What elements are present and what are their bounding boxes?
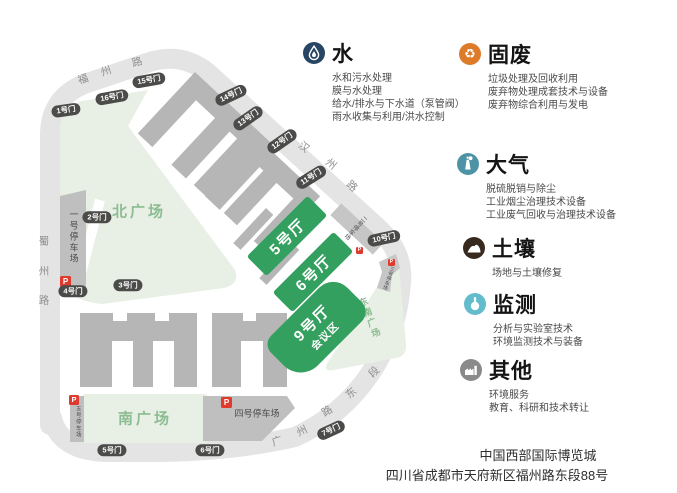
parking-1-label: 一号停车场 — [69, 210, 78, 265]
parking-3-p-icon: P — [388, 259, 395, 266]
flask-icon — [464, 293, 486, 315]
legend-item-soil: 土壤 场地与土壤修复 — [463, 233, 562, 281]
parking-4-label: 四号停车场 — [234, 407, 279, 420]
legend-title-other: 其他 — [489, 355, 533, 385]
legend-line: 工业废气回收与治理技术设备 — [486, 210, 616, 223]
legend-line: 教育、科研和技术转让 — [489, 403, 589, 416]
legend-title-solid-waste: 固废 — [488, 39, 532, 69]
parking-4-p-icon: P — [221, 397, 232, 408]
legend-item-solid-waste: ♻ 固废 垃圾处理及回收利用 废弃物处理成套技术与设备 废弃物综合利用与发电 — [459, 39, 608, 113]
legend-title-monitoring: 监测 — [493, 289, 537, 319]
legend-line: 废弃物处理成套技术与设备 — [488, 87, 608, 100]
south-plaza-label: 南广场 — [118, 408, 172, 429]
legend-line: 环境服务 — [489, 390, 589, 403]
legend-line: 水和污水处理 — [332, 73, 465, 86]
legend-line: 工业烟尘治理技术设备 — [486, 197, 616, 210]
water-drop-icon — [303, 42, 325, 64]
legend-title-water: 水 — [332, 38, 354, 68]
gate-badge-6: 6号门 — [195, 444, 224, 456]
expo-address: 四川省成都市天府新区福州路东段88号 — [386, 465, 608, 484]
gate-badge-5: 5号门 — [97, 444, 126, 456]
building-south-left — [80, 313, 197, 387]
gate-badge-2: 2号门 — [82, 211, 111, 223]
north-plaza-label: 北广场 — [112, 201, 166, 222]
legend-line: 垃圾处理及回收利用 — [488, 74, 608, 87]
legend-item-other: 其他 环境服务 教育、科研和技术转让 — [460, 355, 589, 416]
legend-line: 环境监测技术与装备 — [493, 337, 583, 350]
legend-line: 雨水收集与利用/洪水控制 — [332, 112, 465, 125]
legend-title-air: 大气 — [486, 149, 530, 179]
legend-item-water: 水 水和污水处理 膜与水处理 给水/排水与下水道（泵管阀） 雨水收集与利用/洪水… — [303, 38, 465, 125]
legend-item-monitoring: 监测 分析与实验室技术 环境监测技术与装备 — [464, 289, 583, 350]
legend-line: 给水/排水与下水道（泵管阀） — [332, 99, 465, 112]
road-shuzhou-char: 路 — [39, 293, 50, 308]
road-shuzhou-char: 蜀 — [39, 234, 50, 249]
legend-line: 脱硫脱销与除尘 — [486, 184, 616, 197]
legend-line: 分析与实验室技术 — [493, 324, 583, 337]
road-shuzhou-char: 州 — [39, 264, 50, 279]
legend-title-soil: 土壤 — [492, 233, 536, 263]
expo-map-page: 福 州 路 汉 州 路 蜀 州 路 广 州 路 东 段 北广场 南广场 东南广场… — [0, 0, 677, 493]
parking-5-label: 五号停车场 — [74, 406, 80, 439]
legend-line: 废弃物综合利用与发电 — [488, 100, 608, 113]
recycle-glyph: ♻ — [464, 48, 476, 61]
legend-line: 场地与土壤修复 — [492, 268, 562, 281]
gate-badge-4: 4号门 — [58, 285, 87, 297]
recycle-icon: ♻ — [459, 43, 481, 65]
parking-5-p-icon: P — [69, 395, 79, 405]
factory-icon — [460, 359, 482, 381]
legend-item-air: 大气 脱硫脱销与除尘 工业烟尘治理技术设备 工业废气回收与治理技术设备 — [457, 149, 616, 223]
chimney-icon — [457, 153, 479, 175]
parking-2-p-icon: P — [356, 247, 363, 254]
soil-mound-icon — [463, 237, 485, 259]
gate-badge-3: 3号门 — [113, 279, 142, 291]
legend-line: 膜与水处理 — [332, 86, 465, 99]
expo-name: 中国西部国际博览城 — [479, 445, 596, 464]
